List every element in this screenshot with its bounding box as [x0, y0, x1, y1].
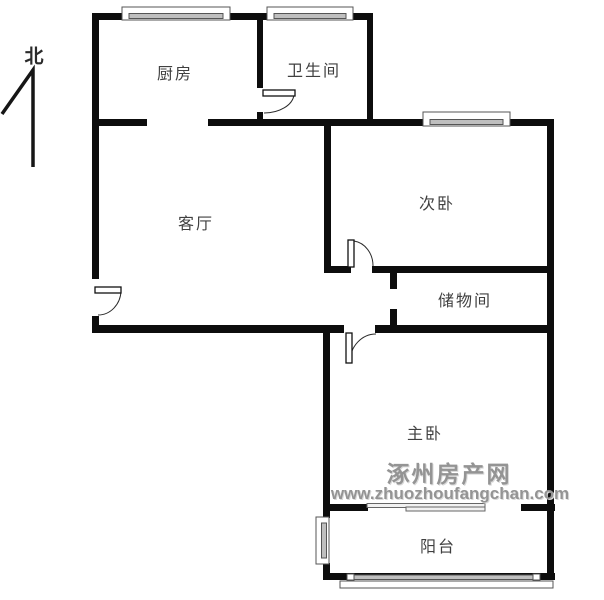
room-label-storage-room: 储物间 [438, 287, 492, 311]
balcony-sliding-door [367, 504, 485, 512]
doors [95, 90, 485, 511]
wall-segment [323, 563, 330, 580]
wall-segment [547, 119, 554, 580]
wall-segment [390, 266, 397, 289]
north-arrow-icon [2, 70, 33, 167]
wall-segment [92, 316, 99, 333]
wall-segment [324, 119, 331, 273]
wall-segment [375, 325, 553, 333]
balcony-front-window [340, 574, 553, 588]
watermark-site-url: www.zhuozhoufangchan.com [331, 484, 569, 504]
wall-segment [323, 325, 330, 518]
entry-door [95, 287, 121, 315]
wall-segment [92, 325, 344, 333]
balcony-side-window [316, 517, 329, 564]
room-label-master-bedroom: 主卧 [407, 420, 443, 444]
floor-plan: 北 厨房 卫生间 客厅 次卧 储物间 主卧 阳台 涿州房产网 www.zhuoz… [0, 0, 604, 600]
kitchen-window [122, 7, 230, 20]
room-label-kitchen: 厨房 [157, 60, 193, 84]
secondary-bedroom-window [423, 112, 510, 126]
wall-segment [367, 13, 373, 126]
master-bedroom-door [346, 333, 376, 363]
north-label: 北 [24, 42, 45, 69]
secondary-bedroom-door [348, 240, 373, 267]
bathroom-door [263, 90, 295, 113]
bathroom-window [267, 7, 353, 20]
room-label-bathroom: 卫生间 [287, 57, 341, 81]
room-label-balcony: 阳台 [420, 533, 456, 557]
room-label-secondary-bedroom: 次卧 [419, 190, 455, 214]
room-label-living-room: 客厅 [178, 210, 214, 234]
wall-segment [92, 119, 147, 126]
wall-segment [257, 13, 263, 88]
wall-segment [257, 112, 263, 126]
wall-segment [92, 13, 99, 279]
wall-segment [390, 309, 397, 333]
wall-segment [372, 266, 553, 273]
floor-plan-drawing [0, 0, 604, 600]
